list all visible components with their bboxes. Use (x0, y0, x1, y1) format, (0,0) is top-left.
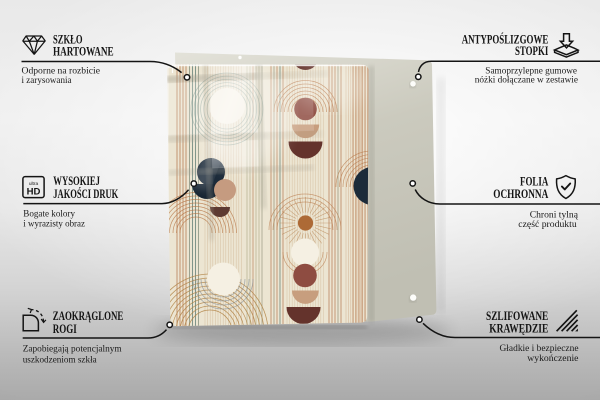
svg-text:Zapobiegają potencjalnym: Zapobiegają potencjalnym (23, 344, 122, 355)
svg-text:JAKOŚCI DRUK: JAKOŚCI DRUK (53, 187, 118, 201)
svg-text:STOPKI: STOPKI (515, 44, 548, 58)
svg-text:KRAWĘDZIE: KRAWĘDZIE (489, 322, 548, 336)
svg-text:uszkodzeniom szkła: uszkodzeniom szkła (23, 354, 98, 365)
svg-text:i wyrazisty obraz: i wyrazisty obraz (23, 219, 85, 230)
svg-text:nóżki dołączane w zestawie: nóżki dołączane w zestawie (475, 75, 579, 86)
svg-text:wykończenie: wykończenie (527, 353, 579, 364)
svg-text:HARTOWANE: HARTOWANE (53, 44, 114, 58)
svg-text:i zarysowania: i zarysowania (22, 75, 73, 86)
svg-text:część produktu: część produktu (518, 219, 576, 230)
svg-text:ROGI: ROGI (53, 322, 77, 336)
svg-text:OCHRONNA: OCHRONNA (493, 187, 548, 201)
svg-text:HD: HD (27, 186, 41, 196)
